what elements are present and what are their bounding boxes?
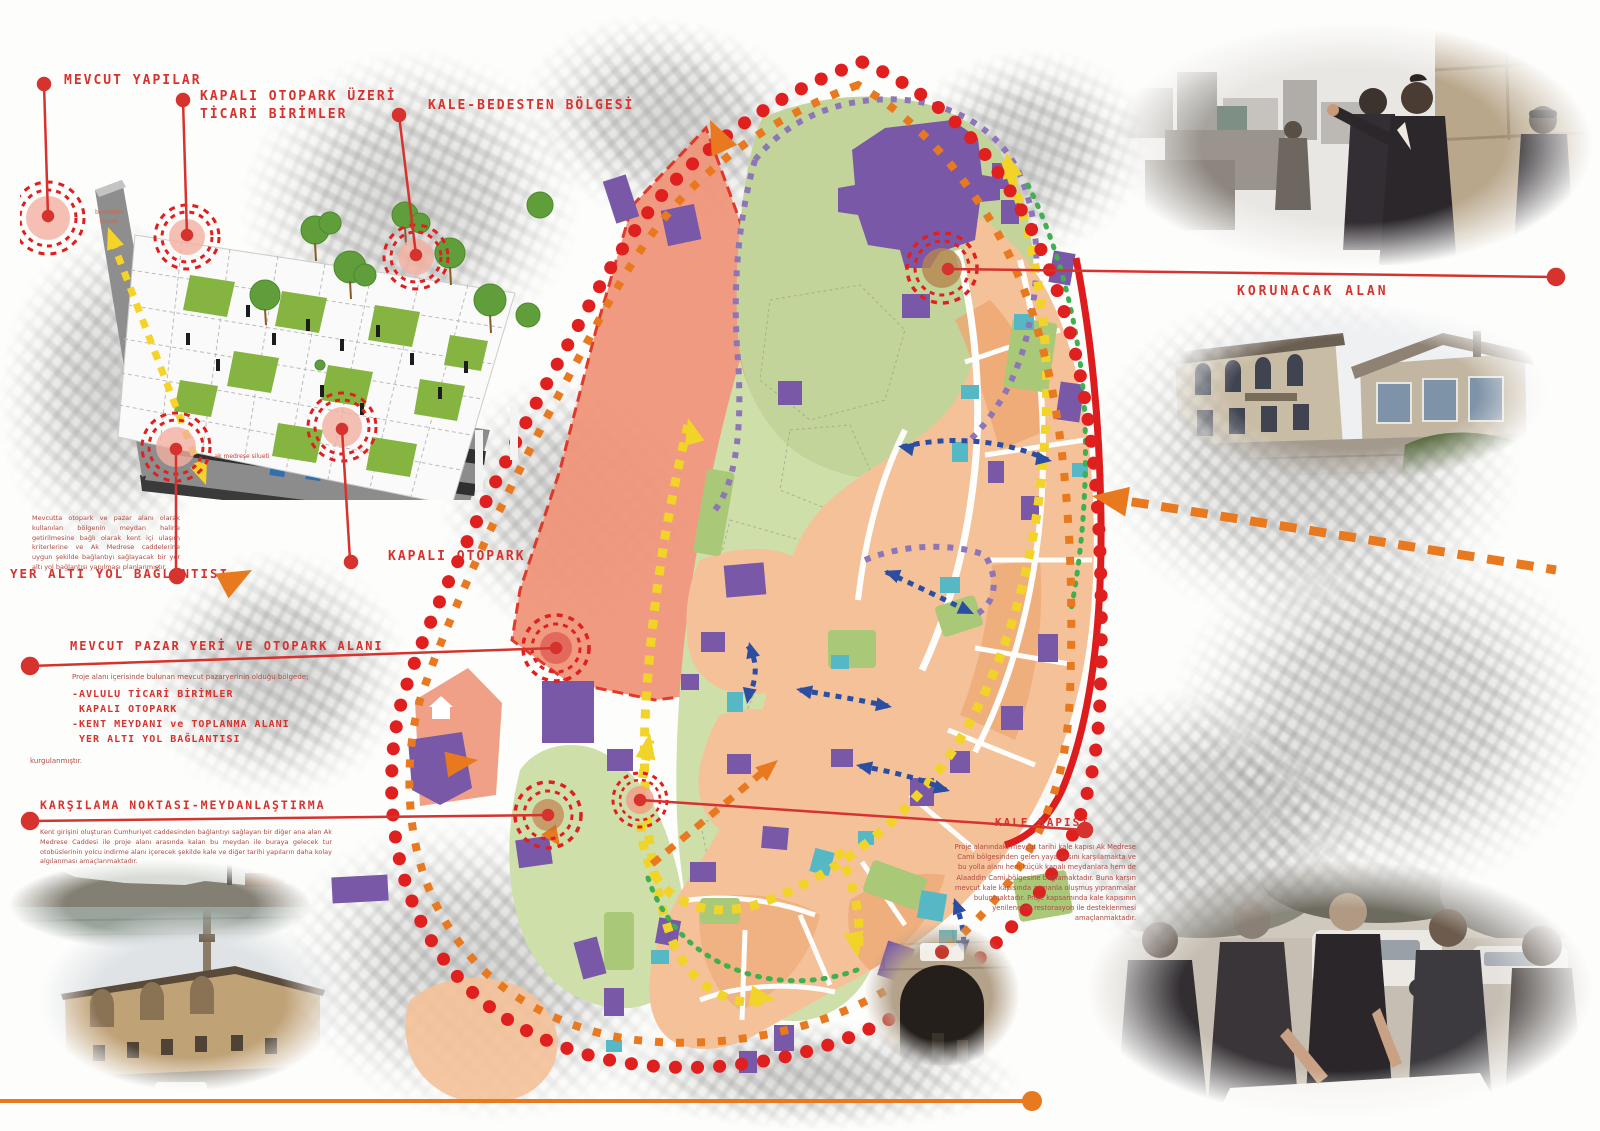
note-bedesten-silueti: bedesten silueti <box>86 208 132 226</box>
photo-site-meeting <box>1080 848 1600 1131</box>
photo-castle-gate <box>862 915 1022 1075</box>
kale-kapisi-body: Proje alanındaki mevcut tarihi kale kapı… <box>950 842 1136 924</box>
zone-peach-bottomleft <box>405 978 557 1104</box>
photo-mosque <box>35 900 345 1100</box>
kale-kapisi-title: KALE KAPISI <box>995 816 1090 831</box>
van <box>155 1082 207 1098</box>
callout-korunacak-alan: KORUNACAK ALAN <box>1237 283 1389 301</box>
masterplan-poster: MEVCUT YAPILAR KAPALI OTOPARK ÜZERİ TİCA… <box>0 0 1600 1131</box>
house-left <box>1169 333 1345 453</box>
photo-officials-pointing <box>1105 10 1600 280</box>
photo-historic-houses <box>1155 295 1555 490</box>
note-ak-medrese-silueti: ak medrese silueti <box>212 452 272 461</box>
